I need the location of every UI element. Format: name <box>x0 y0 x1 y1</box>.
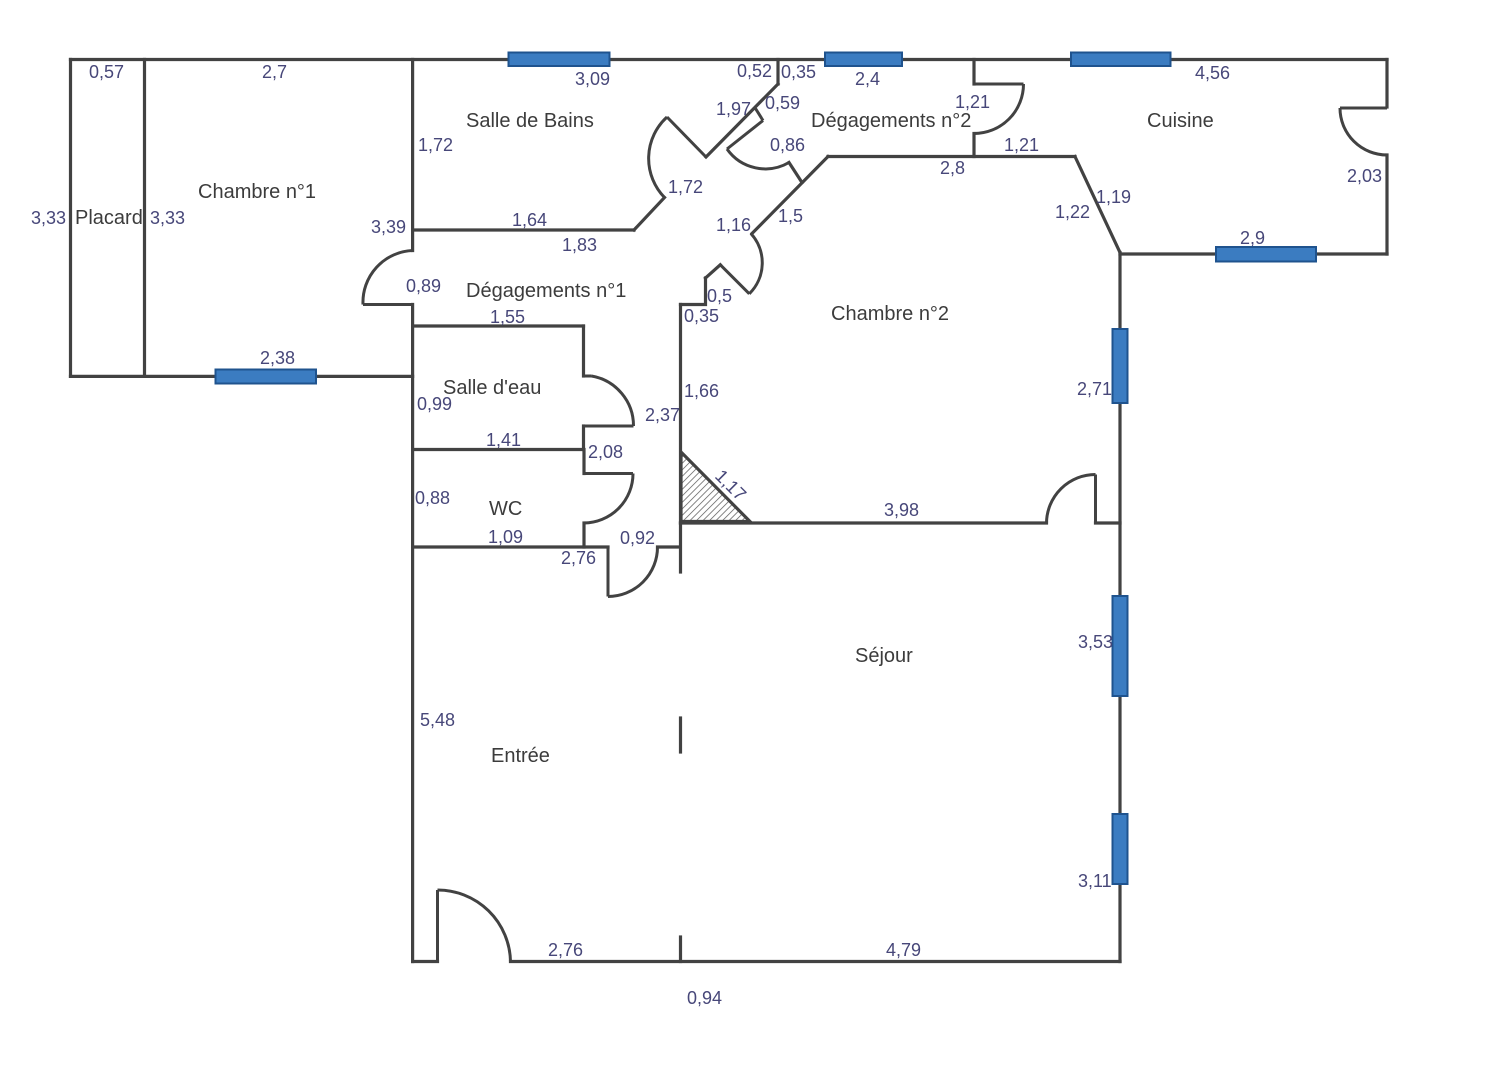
svg-text:1,5: 1,5 <box>778 206 803 226</box>
svg-text:2,8: 2,8 <box>940 158 965 178</box>
svg-text:0,99: 0,99 <box>417 394 452 414</box>
svg-text:3,09: 3,09 <box>575 69 610 89</box>
svg-text:2,37: 2,37 <box>645 405 680 425</box>
svg-text:1,83: 1,83 <box>562 235 597 255</box>
svg-text:Placard: Placard <box>75 207 143 229</box>
svg-text:0,88: 0,88 <box>415 488 450 508</box>
svg-text:3,53: 3,53 <box>1078 632 1113 652</box>
svg-text:2,76: 2,76 <box>548 940 583 960</box>
svg-text:0,35: 0,35 <box>781 62 816 82</box>
svg-text:0,86: 0,86 <box>770 135 805 155</box>
svg-text:1,19: 1,19 <box>1096 187 1131 207</box>
svg-text:1,09: 1,09 <box>488 527 523 547</box>
svg-text:4,56: 4,56 <box>1195 63 1230 83</box>
svg-text:2,4: 2,4 <box>855 69 880 89</box>
svg-text:4,79: 4,79 <box>886 940 921 960</box>
svg-text:1,55: 1,55 <box>490 307 525 327</box>
svg-text:0,52: 0,52 <box>737 61 772 81</box>
svg-text:2,76: 2,76 <box>561 548 596 568</box>
svg-text:WC: WC <box>489 498 522 520</box>
svg-text:0,57: 0,57 <box>89 62 124 82</box>
svg-text:2,9: 2,9 <box>1240 228 1265 248</box>
svg-text:Chambre n°1: Chambre n°1 <box>198 181 316 203</box>
svg-text:3,11: 3,11 <box>1078 871 1112 891</box>
svg-text:3,33: 3,33 <box>150 208 185 228</box>
svg-text:0,94: 0,94 <box>687 988 722 1008</box>
svg-text:1,41: 1,41 <box>486 430 521 450</box>
svg-text:0,89: 0,89 <box>406 276 441 296</box>
svg-text:3,33: 3,33 <box>31 208 66 228</box>
svg-text:1,21: 1,21 <box>1004 135 1039 155</box>
svg-text:2,03: 2,03 <box>1347 166 1382 186</box>
svg-text:Dégagements n°2: Dégagements n°2 <box>811 110 971 132</box>
svg-text:2,71: 2,71 <box>1077 379 1112 399</box>
svg-text:1,21: 1,21 <box>955 92 990 112</box>
svg-text:Salle de Bains: Salle de Bains <box>466 110 594 132</box>
svg-text:1,72: 1,72 <box>668 177 703 197</box>
svg-text:2,7: 2,7 <box>262 62 287 82</box>
svg-text:Entrée: Entrée <box>491 745 550 767</box>
svg-text:Dégagements n°1: Dégagements n°1 <box>466 280 626 302</box>
svg-text:5,48: 5,48 <box>420 710 455 730</box>
svg-text:2,08: 2,08 <box>588 442 623 462</box>
svg-text:1,66: 1,66 <box>684 381 719 401</box>
svg-text:1,97: 1,97 <box>716 99 751 119</box>
svg-text:0,92: 0,92 <box>620 528 655 548</box>
svg-text:3,39: 3,39 <box>371 217 406 237</box>
svg-text:Salle d'eau: Salle d'eau <box>443 377 541 399</box>
svg-text:1,64: 1,64 <box>512 210 547 230</box>
svg-text:Séjour: Séjour <box>855 645 913 667</box>
svg-text:0,35: 0,35 <box>684 306 719 326</box>
svg-text:3,98: 3,98 <box>884 500 919 520</box>
svg-text:Cuisine: Cuisine <box>1147 110 1214 132</box>
svg-text:1,22: 1,22 <box>1055 202 1090 222</box>
svg-text:1,16: 1,16 <box>716 215 751 235</box>
svg-text:0,59: 0,59 <box>765 93 800 113</box>
svg-text:1,72: 1,72 <box>418 135 453 155</box>
svg-text:0,5: 0,5 <box>707 286 732 306</box>
svg-text:Chambre n°2: Chambre n°2 <box>831 303 949 325</box>
svg-text:2,38: 2,38 <box>260 348 295 368</box>
